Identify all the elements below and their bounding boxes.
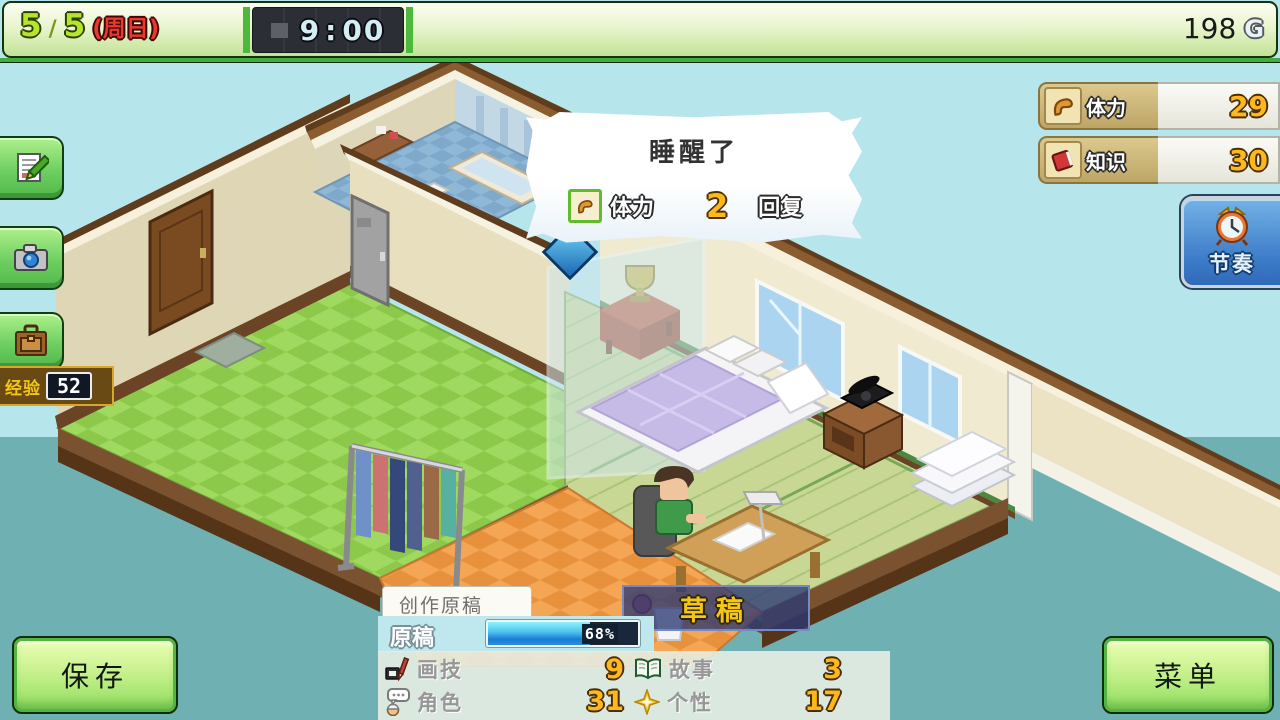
knowledge-value: 30 xyxy=(1229,144,1268,177)
menu-button-label: 菜单 xyxy=(1154,655,1222,695)
manuscript-label: 原稿 xyxy=(390,620,434,652)
stat-cell-character: 角色 31 xyxy=(384,686,634,719)
experience-label: 经验 xyxy=(0,374,46,399)
stat-value: 3 xyxy=(823,654,842,685)
progress-fill xyxy=(488,622,590,645)
currency-icon: G xyxy=(1244,15,1264,43)
action-status-text: 草稿 xyxy=(680,589,752,628)
bubble-stat-label: 体力 xyxy=(610,190,654,222)
stat-cell-story: 故事 3 xyxy=(634,653,884,686)
manuscript-progress-row: 原稿 68% xyxy=(378,616,654,652)
speech-face-icon xyxy=(384,688,410,716)
stat-label: 角色 xyxy=(417,687,463,717)
time-colon: : xyxy=(325,14,338,47)
stat-label: 个性 xyxy=(667,687,713,717)
save-button-label: 保存 xyxy=(61,655,129,695)
knowledge-stat-value-box: 30 xyxy=(1158,136,1280,184)
stat-value: 31 xyxy=(586,686,624,717)
sparkle-icon xyxy=(634,689,660,715)
money-amount: 198 xyxy=(1183,12,1236,45)
time-display: 9 : 00 xyxy=(252,7,404,53)
stat-cell-personality: 个性 17 xyxy=(634,686,884,719)
book-icon xyxy=(1044,141,1082,179)
stamina-stat-row: 体力 29 xyxy=(1038,82,1280,130)
progress-percent-label: 68% xyxy=(582,624,618,644)
stat-cell-drawing: 画技 9 xyxy=(384,653,634,686)
gray-door xyxy=(352,196,388,305)
bubble-stat-value: 2 xyxy=(706,187,728,225)
experience-value: 52 xyxy=(46,372,92,400)
wall-end-cap xyxy=(1008,372,1032,520)
briefcase-icon xyxy=(13,324,49,358)
muscle-icon xyxy=(568,189,602,223)
work-panel-tab: 创作原稿 xyxy=(382,586,532,616)
alarm-clock-icon xyxy=(1210,204,1254,248)
day-counter: 5 / 5 (周日) xyxy=(20,8,159,44)
stat-label: 画技 xyxy=(417,654,463,684)
knowledge-stat-left: 知识 xyxy=(1038,136,1158,184)
memo-pencil-icon xyxy=(13,150,49,186)
report-tab-button[interactable] xyxy=(0,136,64,200)
day-current: 5 xyxy=(20,8,42,44)
top-status-bar: 5 / 5 (周日) 9 : 00 198 G xyxy=(0,0,1280,62)
knowledge-label: 知识 xyxy=(1086,146,1126,175)
experience-badge: 经验 52 xyxy=(0,366,114,406)
pace-button[interactable]: 节奏 xyxy=(1181,196,1280,288)
bubble-stat-suffix: 回复 xyxy=(758,190,802,222)
top-bar-panel xyxy=(2,1,1278,58)
manuscript-progress-bar: 68% xyxy=(486,620,640,647)
pace-button-label: 节奏 xyxy=(1184,248,1280,278)
ink-pen-icon xyxy=(384,656,410,682)
stat-value: 17 xyxy=(804,686,842,717)
stat-value: 9 xyxy=(605,654,624,685)
camera-tab-button[interactable] xyxy=(0,226,64,290)
knowledge-stat-row: 知识 30 xyxy=(1038,136,1280,184)
muscle-icon xyxy=(1044,87,1082,125)
stamina-stat-left: 体力 xyxy=(1038,82,1158,130)
speech-bubble: 睡醒了 体力 2 回复 xyxy=(526,112,862,244)
menu-button[interactable]: 菜单 xyxy=(1102,636,1274,714)
items-tab-button[interactable] xyxy=(0,312,64,370)
stamina-label: 体力 xyxy=(1086,92,1126,121)
time-hour: 9 xyxy=(300,14,321,47)
save-button[interactable]: 保存 xyxy=(12,636,178,714)
stat-label: 故事 xyxy=(669,654,715,684)
time-minutes: 00 xyxy=(342,14,385,47)
stamina-stat-value-box: 29 xyxy=(1158,82,1280,130)
clock-chip xyxy=(271,23,288,38)
money-display: 198 G xyxy=(1183,12,1264,45)
top-bar-strip xyxy=(0,58,1280,63)
open-book-icon xyxy=(634,657,662,681)
stamina-value: 29 xyxy=(1229,90,1268,123)
day-separator: / xyxy=(49,17,57,42)
speech-bubble-stat-row: 体力 2 回复 xyxy=(568,187,862,225)
camera-icon xyxy=(12,241,50,275)
day-total: 5 xyxy=(64,8,86,44)
weekday-label: (周日) xyxy=(92,9,159,43)
speech-bubble-title: 睡醒了 xyxy=(526,132,862,169)
work-stats-grid: 画技 9 故事 3 角色 31 个性 17 xyxy=(378,651,890,720)
